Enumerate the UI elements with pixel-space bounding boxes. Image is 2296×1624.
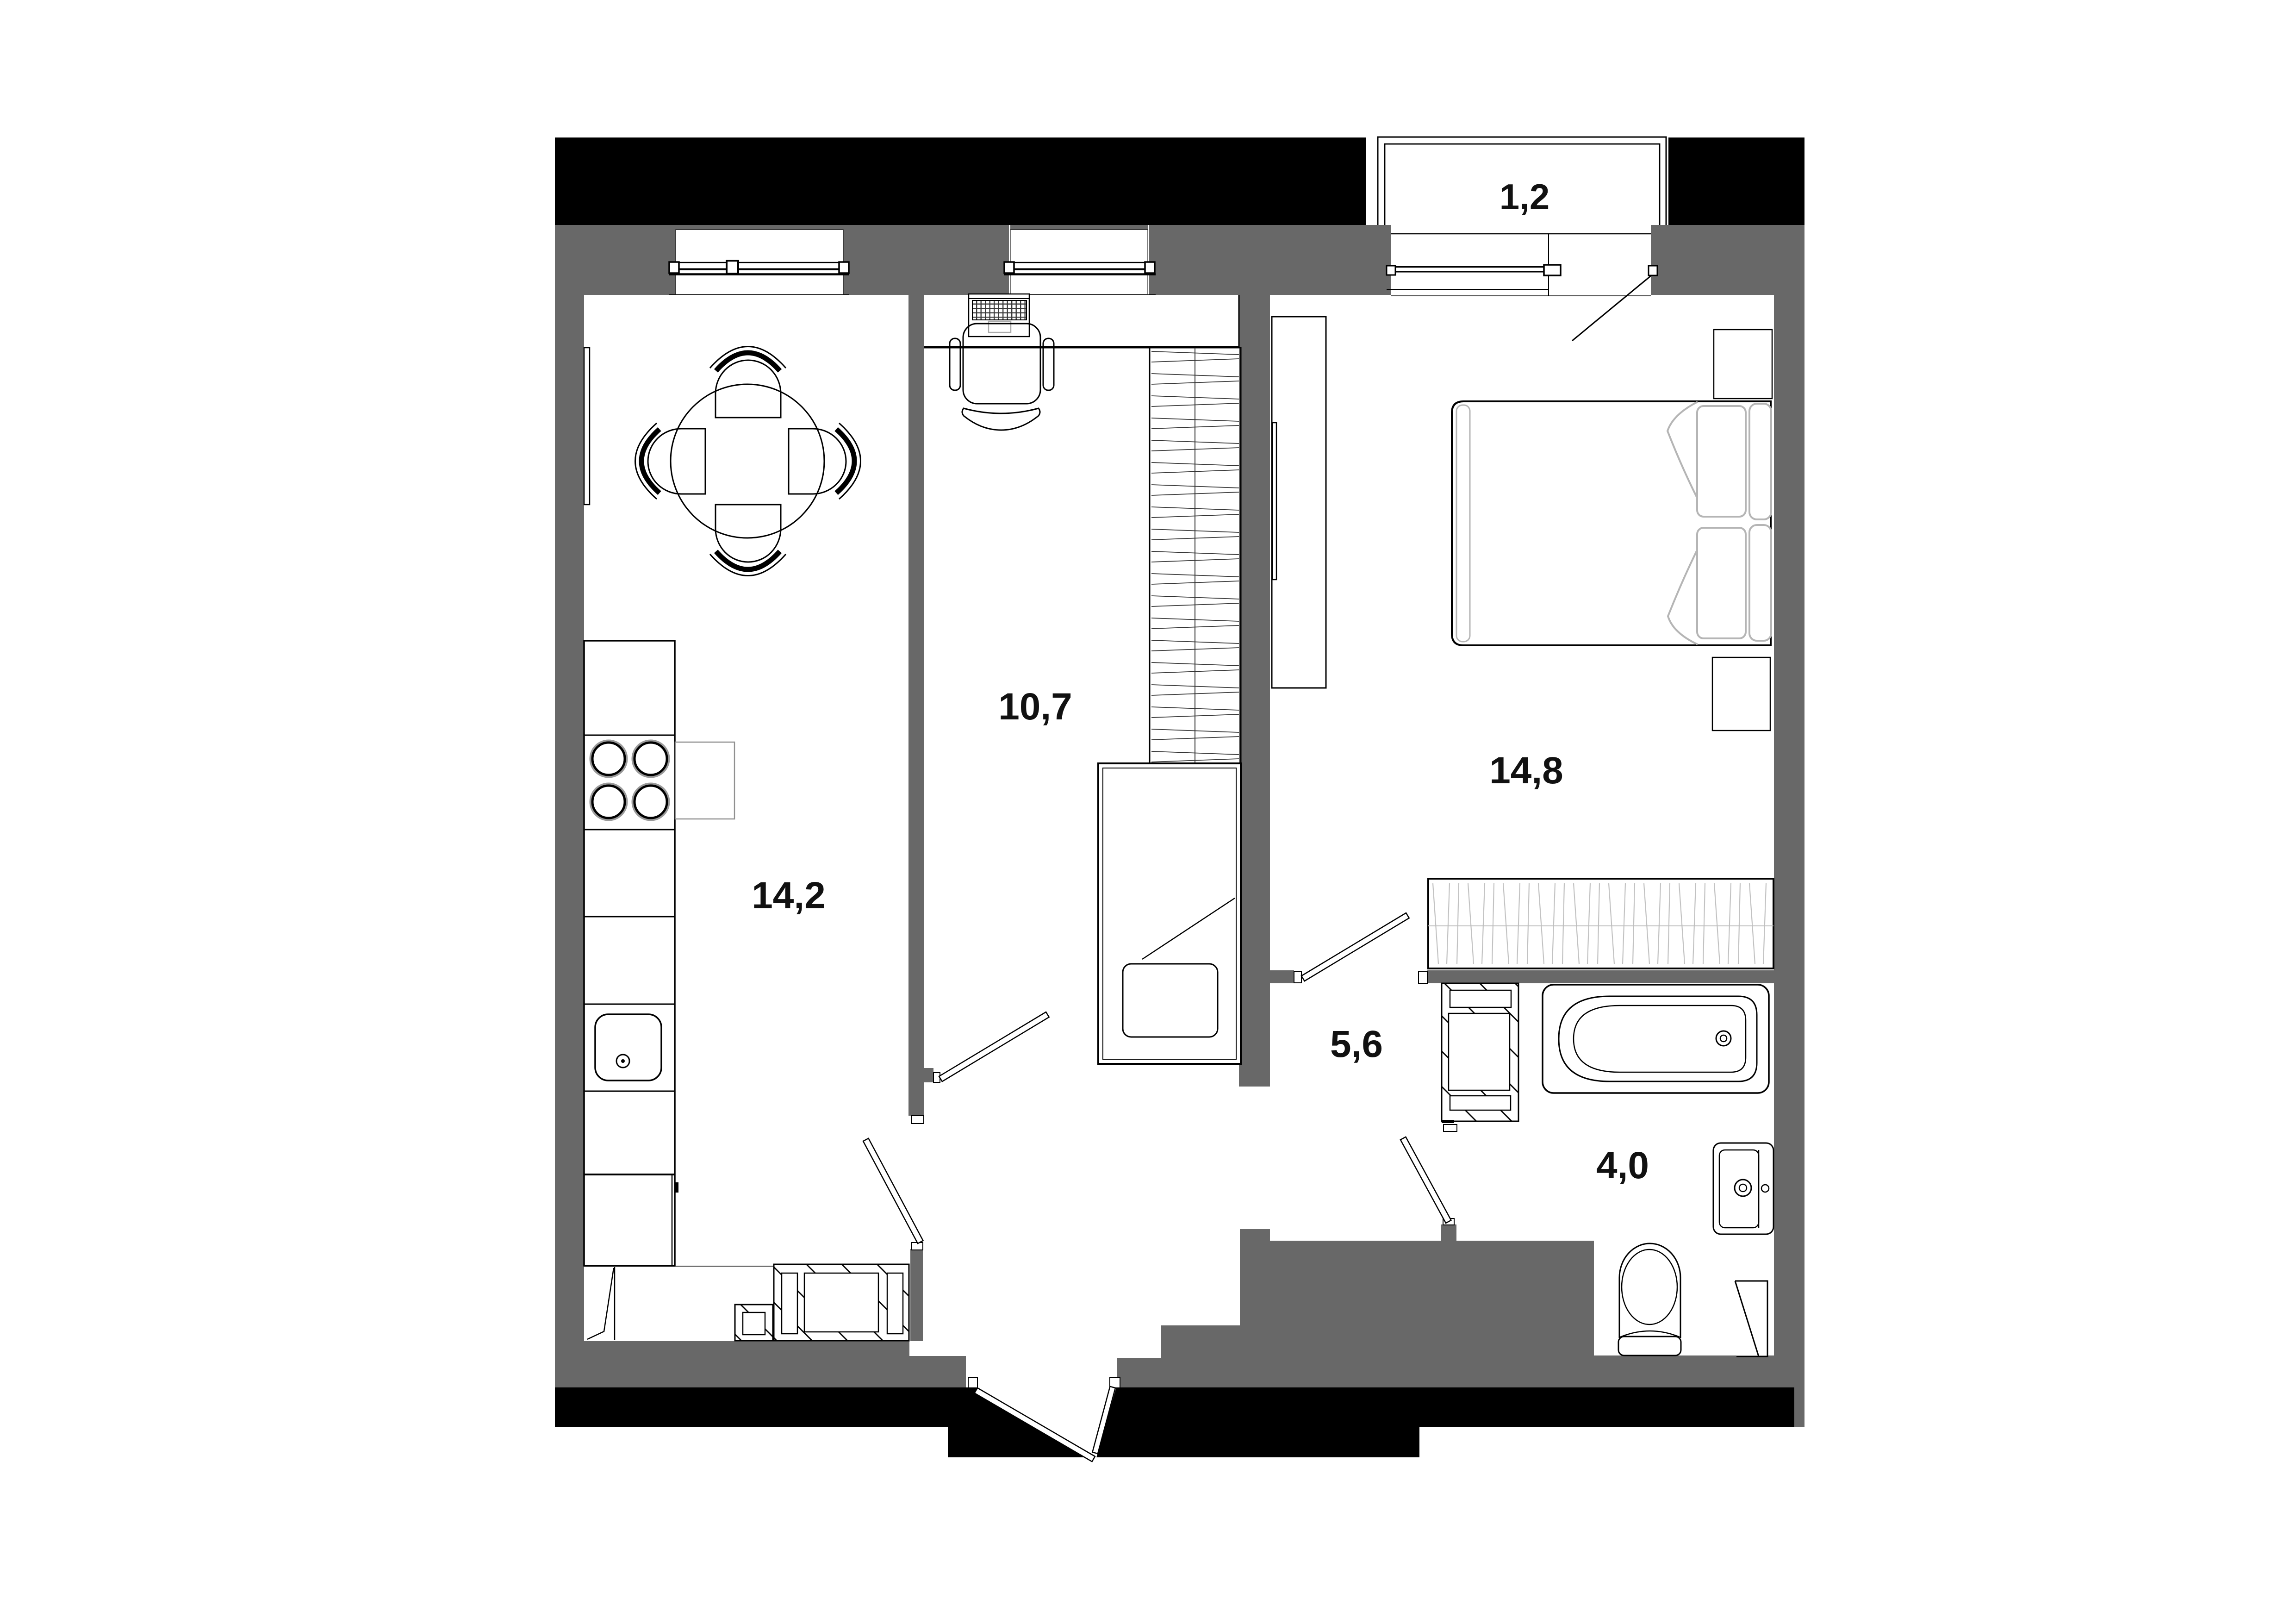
svg-text:14,2: 14,2 [752, 874, 826, 917]
svg-text:10,7: 10,7 [998, 686, 1072, 728]
svg-text:5,6: 5,6 [1330, 1023, 1383, 1065]
svg-text:1,2: 1,2 [1500, 176, 1549, 217]
svg-text:14,8: 14,8 [1489, 750, 1563, 792]
svg-text:4,0: 4,0 [1596, 1144, 1649, 1187]
